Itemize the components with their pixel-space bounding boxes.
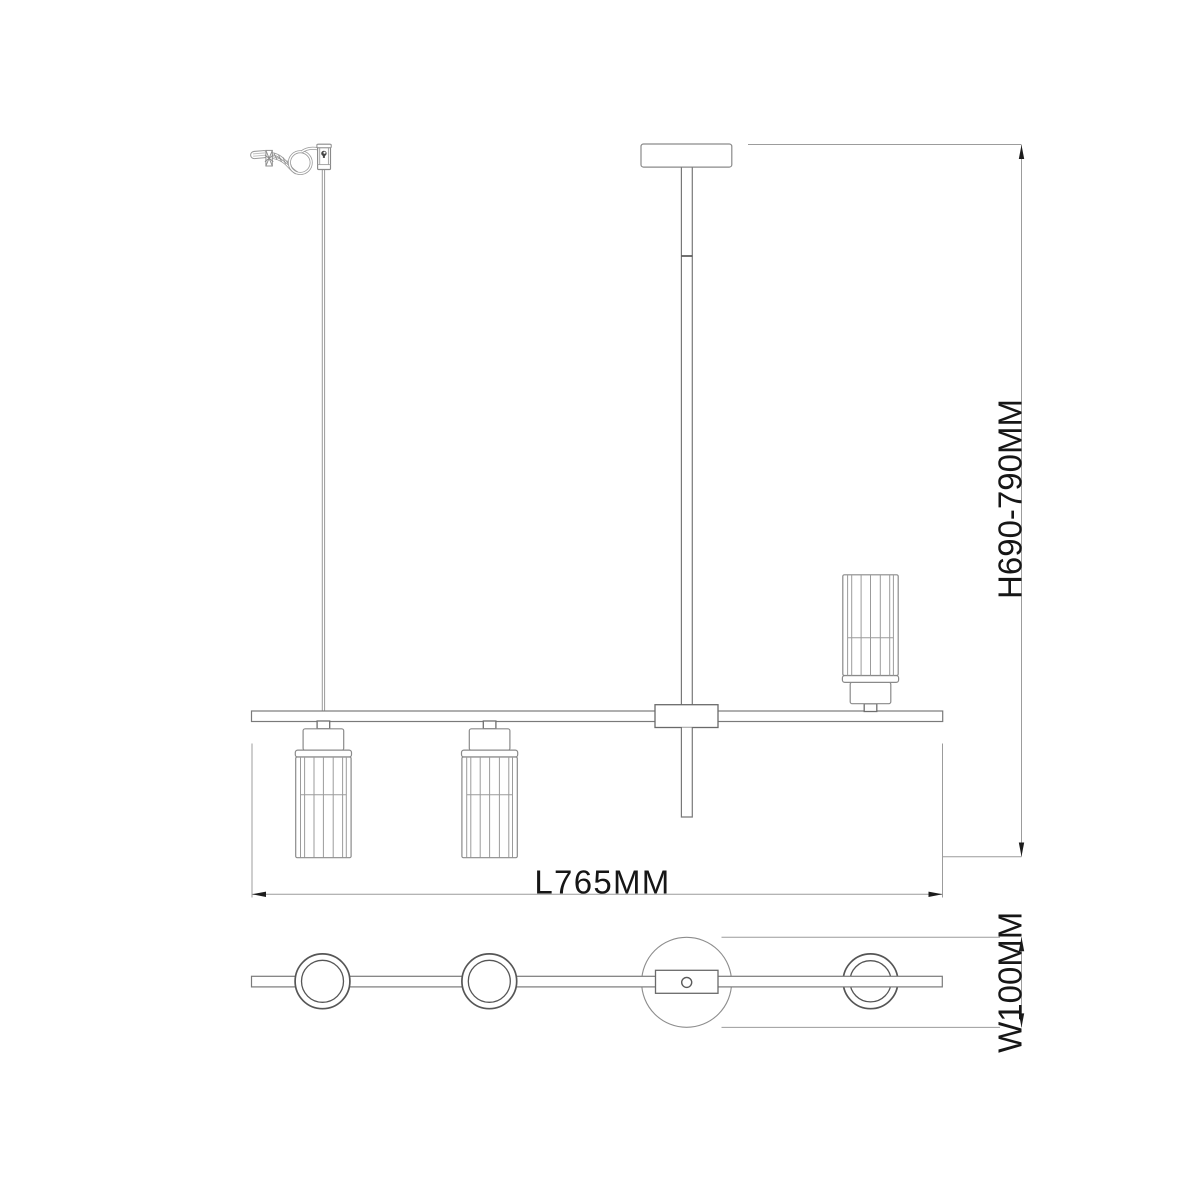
svg-text:H690-790MM: H690-790MM <box>992 399 1029 599</box>
svg-text:L765MM: L765MM <box>534 864 670 901</box>
svg-text:W100MM: W100MM <box>992 912 1029 1053</box>
